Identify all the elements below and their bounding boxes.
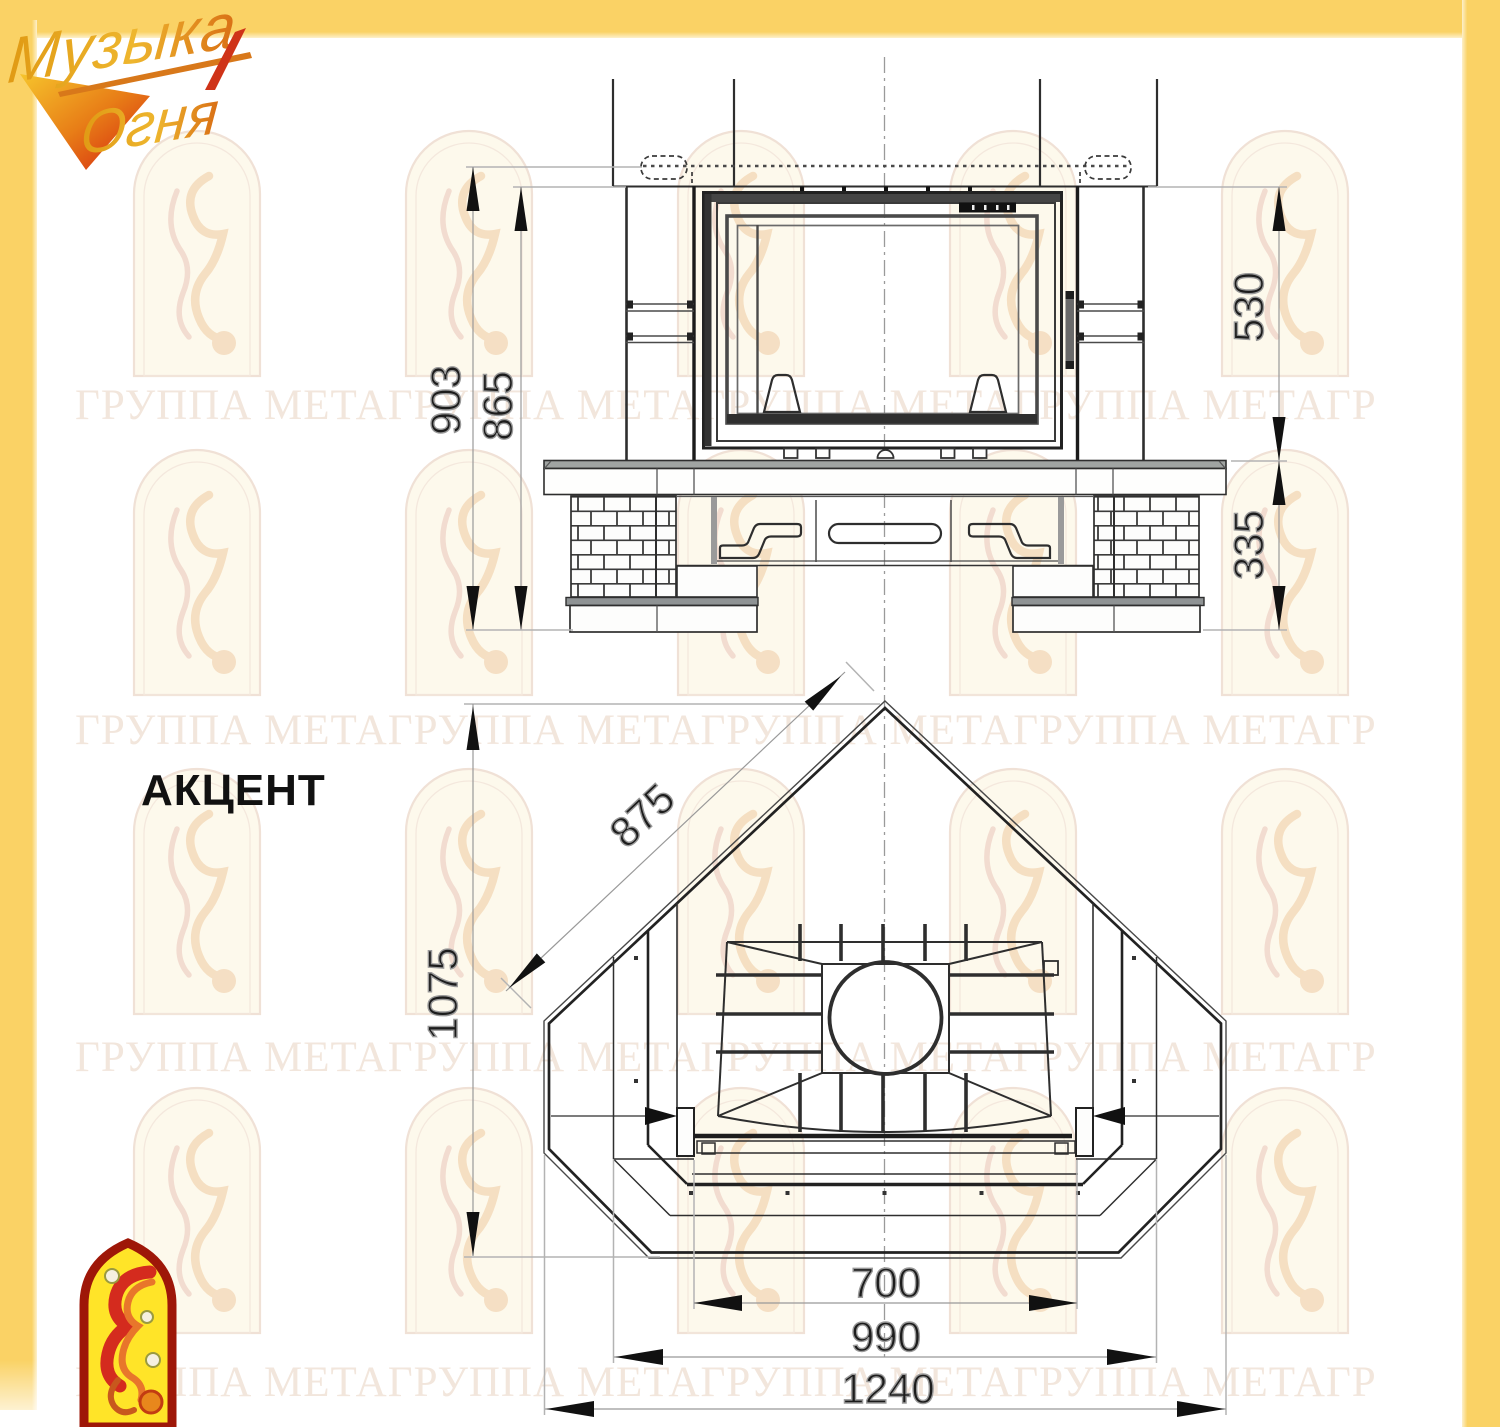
svg-text:903: 903 (422, 365, 469, 435)
svg-text:1240: 1240 (841, 1365, 934, 1412)
svg-text:530: 530 (1225, 272, 1272, 342)
svg-text:АКЦЕНТ: АКЦЕНТ (141, 766, 326, 815)
svg-text:700: 700 (851, 1259, 921, 1306)
svg-text:335: 335 (1225, 510, 1272, 580)
svg-text:ГРУППА МЕТАГРУППА МЕТАГРУППА М: ГРУППА МЕТАГРУППА МЕТАГРУППА МЕТАГРУППА … (75, 1359, 1377, 1406)
svg-text:990: 990 (851, 1313, 921, 1360)
svg-text:1075: 1075 (419, 947, 466, 1040)
svg-text:ГРУППА МЕТАГРУППА МЕТАГРУППА М: ГРУППА МЕТАГРУППА МЕТАГРУППА МЕТАГРУППА … (75, 707, 1377, 754)
svg-text:865: 865 (474, 371, 521, 441)
svg-text:ГРУППА МЕТАГРУППА МЕТАГРУППА М: ГРУППА МЕТАГРУППА МЕТАГРУППА МЕТАГРУППА … (75, 1034, 1377, 1081)
